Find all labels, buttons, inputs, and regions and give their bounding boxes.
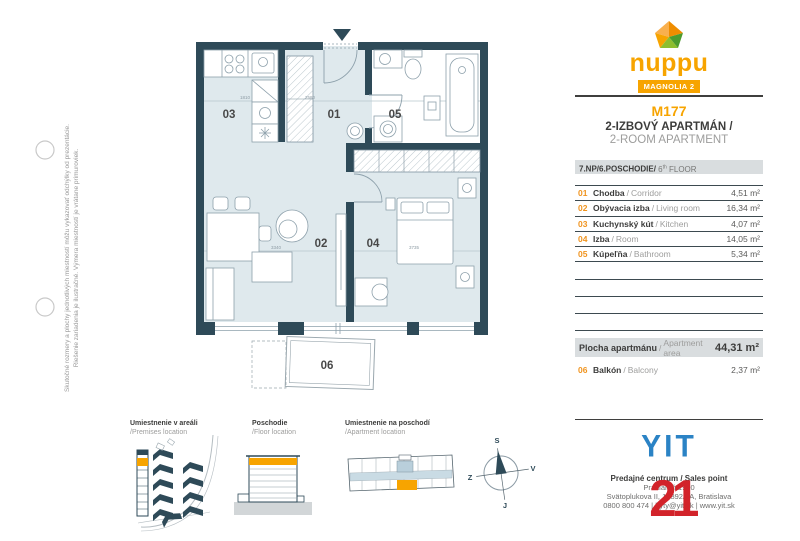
red-watermark: 21 [649, 472, 694, 526]
room-label-03: 03 [223, 109, 236, 121]
floor-location-diagram [234, 456, 312, 515]
empty-row [575, 314, 763, 331]
compass-south-label: J [503, 501, 507, 510]
compass-icon: S V J Z [468, 436, 536, 510]
windows [215, 322, 474, 335]
premises-location-title-sk: Umiestnenie v areáli [130, 420, 220, 429]
unit-type-sk: 2-IZBOVÝ APARTMÁN / [575, 121, 763, 133]
empty-rows [575, 263, 763, 331]
punch-hole [36, 141, 54, 159]
svg-text:3735: 3735 [409, 245, 420, 250]
empty-row [575, 297, 763, 314]
balcony-dashed-extension [252, 341, 286, 388]
room-label-04: 04 [367, 238, 380, 250]
entrance-arrow-icon [333, 29, 351, 41]
apartment-location-title-sk: Umiestnenie na poschodí [345, 420, 455, 429]
divider [575, 95, 763, 97]
room-label-05: 05 [389, 109, 402, 121]
unit-code: M177 [575, 103, 763, 119]
compass-west-label: Z [468, 473, 473, 482]
table-row: 01 Chodba/Corridor 4,51 m² [575, 186, 763, 201]
empty-row [575, 263, 763, 280]
svg-text:1810: 1810 [240, 95, 251, 100]
room-number: 02 [578, 203, 593, 213]
room-name: Chodba/Corridor [593, 188, 731, 198]
project-badge: MAGNOLIA 2 [638, 80, 700, 93]
room-name: Obývacia izba/Living room [593, 203, 726, 213]
room-area: 16,34 m² [726, 203, 760, 213]
apartment-location-title-en: /Apartment location [345, 429, 455, 438]
compass-north-label: S [494, 436, 499, 445]
floorplan-drawing: 1810 2580 3340 3735 01 02 03 04 05 06 [0, 0, 575, 541]
separator: / [659, 343, 661, 353]
premises-location-title-en: /Premises location [130, 429, 220, 438]
room-name: Izba/Room [593, 234, 726, 244]
apartment-area-label-en: Apartment area [663, 338, 715, 358]
table-row: 05 Kúpeľňa/Bathroom 5,34 m² [575, 247, 763, 262]
table-row: 02 Obývacia izba/Living room 16,34 m² [575, 201, 763, 216]
room-number: 03 [578, 219, 593, 229]
premises-location-title: Umiestnenie v areáli /Premises location [130, 420, 220, 437]
floor-location-title: Poschodie /Floor location [252, 420, 332, 437]
balcony-row: 06 Balkón/Balcony 2,37 m² [575, 362, 763, 377]
apartment-area-value: 44,31 m² [715, 342, 759, 354]
room-number: 05 [578, 249, 593, 259]
room-name: Kuchynský kút/Kitchen [593, 219, 731, 229]
floor-label-en: 6th FLOOR [656, 165, 697, 174]
unit-type-en: 2-ROOM APARTMENT [575, 134, 763, 146]
room-area: 4,51 m² [731, 188, 760, 198]
disclaimer-line-2: Riešenie zariadenia je ilustračné. Výmer… [73, 93, 82, 423]
empty-row [575, 280, 763, 297]
nuppu-logo-icon [638, 20, 700, 50]
room-number: 04 [578, 234, 593, 244]
apartment-location-diagram [348, 455, 454, 491]
table-row: 03 Kuchynský kút/Kitchen 4,07 m² [575, 217, 763, 232]
room-name: Balkón/Balcony [593, 365, 731, 375]
apartment-area-label-sk: Plocha apartmánu [579, 343, 657, 353]
room-area: 14,05 m² [726, 234, 760, 244]
floor-band: 7.NP/6.POSCHODIE/ 6th FLOOR [575, 160, 763, 174]
room-name: Kúpeľňa/Bathroom [593, 249, 731, 259]
disclaimer-line-1: Skutočné rozmery a plochy jednotlivých m… [64, 93, 73, 423]
room-label-02: 02 [315, 238, 328, 250]
floor-location-title-sk: Poschodie [252, 420, 332, 429]
room-table: 01 Chodba/Corridor 4,51 m² 02 Obývacia i… [575, 185, 763, 262]
disclaimer-text: Skutočné rozmery a plochy jednotlivých m… [64, 93, 82, 423]
nuppu-wordmark: nuppu [575, 49, 763, 78]
table-row: 04 Izba/Room 14,05 m² [575, 232, 763, 247]
apartment-location-title: Umiestnenie na poschodí /Apartment locat… [345, 420, 455, 437]
floorplan-sheet: { "disclaimer": { "line1": "Skutočné roz… [0, 0, 800, 541]
room-label-06: 06 [321, 360, 334, 372]
room-label-01: 01 [328, 109, 341, 121]
room-number: 01 [578, 188, 593, 198]
compass-east-label: V [530, 464, 535, 473]
room-number: 06 [578, 365, 593, 375]
room-area: 2,37 m² [731, 365, 760, 375]
punch-hole [36, 298, 54, 316]
room-area: 5,34 m² [731, 249, 760, 259]
boiler [347, 123, 363, 139]
yit-logo: YIT [575, 429, 763, 465]
svg-text:2580: 2580 [305, 95, 316, 100]
floor-location-title-en: /Floor location [252, 429, 332, 438]
info-panel: nuppu MAGNOLIA 2 M177 2-IZBOVÝ APARTMÁN … [575, 0, 763, 541]
divider [575, 419, 763, 420]
premises-location-diagram [137, 435, 218, 531]
floor-label-sk: 7.NP/6.POSCHODIE/ [579, 165, 656, 174]
apartment-area-band: Plocha apartmánu / Apartment area 44,31 … [575, 338, 763, 357]
svg-text:3340: 3340 [271, 245, 282, 250]
room-area: 4,07 m² [731, 219, 760, 229]
